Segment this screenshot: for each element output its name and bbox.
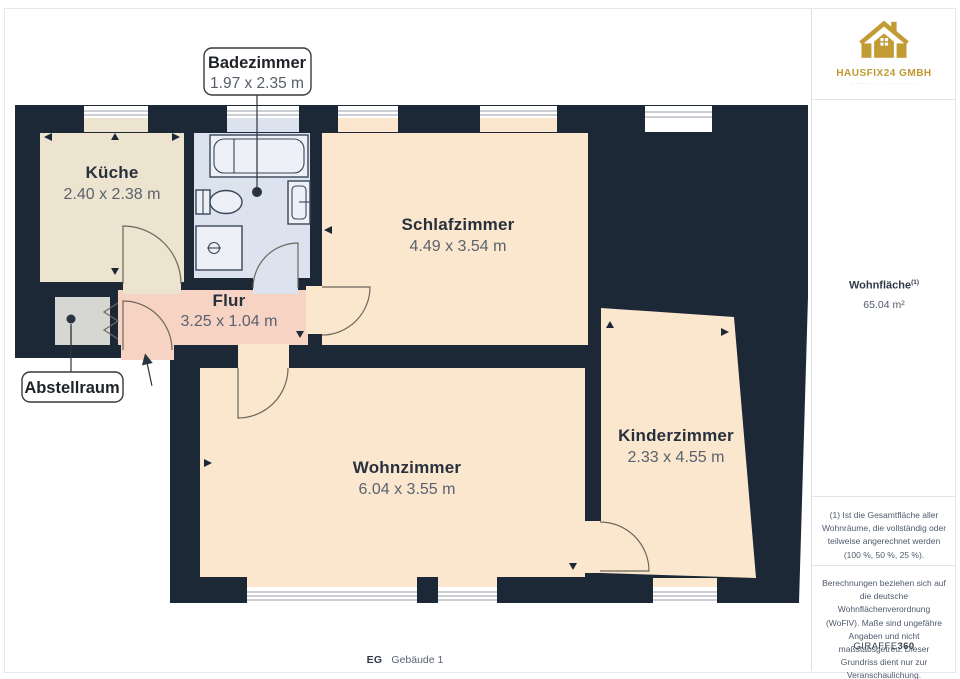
floorplan-page: Küche 2.40 x 2.38 m Schlafzimmer 4.49 x …: [0, 0, 960, 679]
room-label-schlafzimmer: Schlafzimmer: [402, 215, 515, 234]
footnote-disclaimer: Berechnungen beziehen sich auf die deuts…: [820, 577, 948, 679]
brand-name: HAUSFIX24 GMBH: [812, 68, 956, 79]
room-floor-kueche: [40, 133, 184, 282]
sidebar: HAUSFIX24 GMBH ··········· · · ·········…: [812, 0, 956, 679]
living-area-value: 65.04 m²: [812, 299, 956, 311]
door-gap-wohnzimmer: [238, 344, 289, 369]
room-label-kinderzimmer: Kinderzimmer: [618, 426, 734, 445]
sink-icon: [288, 181, 310, 224]
window: [645, 106, 712, 132]
storage-light-icon: [67, 315, 76, 324]
window: [247, 577, 417, 603]
living-area-block: Wohnfläche(1) 65.04 m²: [812, 279, 956, 311]
room-dims-schlafzimmer: 4.49 x 3.54 m: [410, 238, 507, 255]
divider: [812, 496, 956, 497]
room-dims-kinderzimmer: 2.33 x 4.55 m: [628, 449, 725, 466]
building-label: Gebäude 1: [391, 654, 443, 666]
credit-bold: 360: [897, 641, 914, 652]
living-area-footnote-ref: (1): [911, 279, 919, 286]
door-gap-kueche: [123, 278, 181, 294]
shower-icon: [196, 226, 242, 270]
footnote-area: (1) Ist die Gesamtfläche aller Wohnräume…: [820, 509, 948, 562]
divider: [812, 99, 956, 100]
window: [480, 106, 557, 132]
giraffe360-credit: GIRAFFE360: [812, 641, 956, 652]
window: [84, 106, 148, 132]
living-area-label: Wohnfläche(1): [812, 279, 956, 292]
window: [438, 577, 497, 603]
room-label-flur: Flur: [213, 291, 246, 310]
credit-regular: GIRAFFE: [853, 641, 897, 652]
toilet-icon: [196, 190, 242, 214]
callout-badezimmer-dims: 1.97 x 2.35 m: [210, 75, 304, 92]
callout-abstellraum-name: Abstellraum: [24, 379, 119, 397]
room-dims-flur: 3.25 x 1.04 m: [181, 313, 278, 330]
house-icon: [857, 16, 911, 60]
window: [227, 106, 299, 132]
room-dims-wohnzimmer: 6.04 x 3.55 m: [359, 481, 456, 498]
door-gap-kinderzimmer: [583, 521, 603, 573]
footer: EGGebäude 1: [0, 654, 810, 666]
floor-plan: Küche 2.40 x 2.38 m Schlafzimmer 4.49 x …: [0, 0, 810, 679]
callout-badezimmer-name: Badezimmer: [208, 54, 307, 72]
floor-label: EG: [367, 654, 383, 666]
room-dims-kueche: 2.40 x 2.38 m: [64, 186, 161, 203]
door-gap-schlafzimmer: [306, 286, 324, 334]
window: [653, 578, 717, 603]
door-gap-badezimmer: [253, 274, 298, 294]
room-label-kueche: Küche: [86, 163, 139, 182]
room-label-wohnzimmer: Wohnzimmer: [353, 458, 462, 477]
brand-tagline: ··········· · · ···········: [812, 81, 956, 86]
window: [338, 106, 398, 132]
divider: [812, 565, 956, 566]
brand-block: HAUSFIX24 GMBH ··········· · · ·········…: [812, 16, 956, 86]
room-floor-abstellraum: [55, 297, 110, 345]
living-area-title: Wohnfläche: [849, 280, 911, 292]
bathtub-icon: [210, 135, 308, 177]
